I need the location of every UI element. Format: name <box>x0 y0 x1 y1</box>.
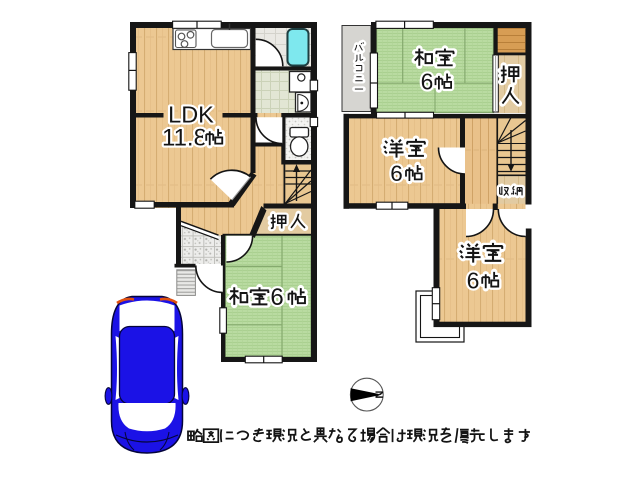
svg-text:6: 6 <box>270 284 283 311</box>
svg-text:6: 6 <box>467 268 480 294</box>
svg-text:N: N <box>373 391 385 399</box>
svg-text:11.8: 11.8 <box>162 125 207 152</box>
svg-text:6: 6 <box>421 69 434 95</box>
svg-text:6: 6 <box>390 161 403 186</box>
